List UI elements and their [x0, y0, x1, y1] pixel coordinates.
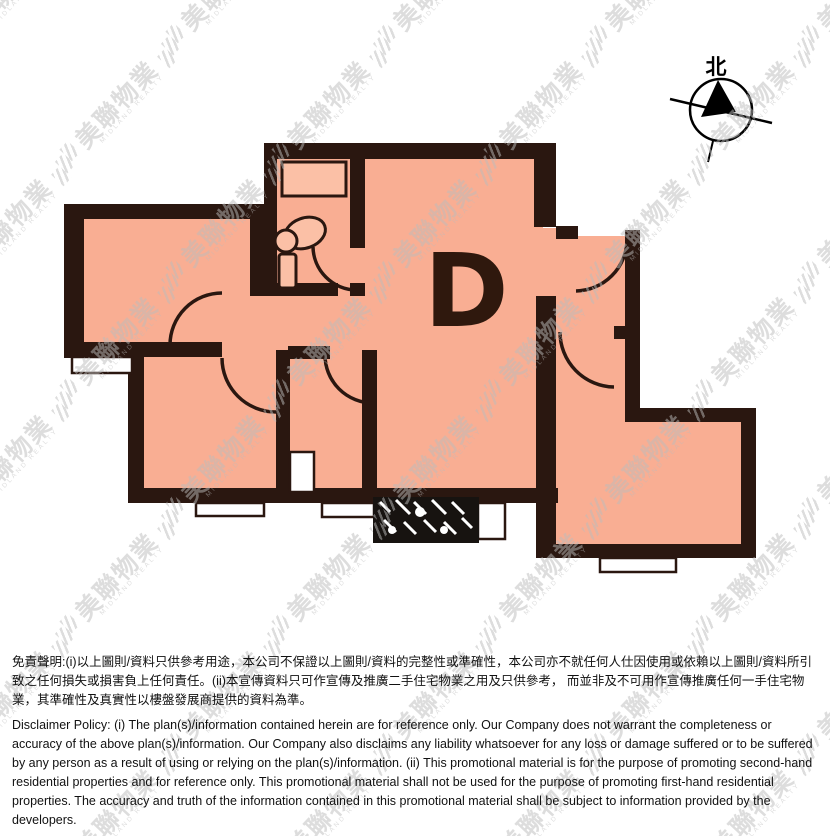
- toilet-tank: [275, 230, 297, 252]
- unit-label: D: [424, 232, 509, 351]
- window-sill-1: [196, 503, 264, 516]
- room-master-bedroom: [552, 416, 748, 552]
- compass-north-label: 北: [706, 56, 727, 79]
- floor-plan-page: D 北 美聯物業MIDLAND REALTY美聯物業MIDLAND REALTY…: [0, 0, 830, 836]
- room-corridor: [222, 292, 372, 354]
- window-ledge-left: [72, 357, 132, 373]
- closet-cabinet: [282, 162, 346, 196]
- window-sill-3: [478, 503, 505, 539]
- room-bedroom-bottomleft: [136, 352, 282, 494]
- room-entrance-hall: [552, 236, 630, 336]
- balcony-hatch-box: [374, 498, 478, 542]
- bathroom-sink: [279, 254, 296, 288]
- compass-tail: [708, 141, 713, 162]
- window-sill-4: [600, 558, 676, 572]
- disclaimer-english: Disclaimer Policy: (i) The plan(s)/infor…: [12, 716, 820, 830]
- window-sill-2: [322, 503, 374, 517]
- disclaimer: 免責聲明:(i)以上圖則/資料只供參考用途，本公司不保證以上圖則/資料的完整性或…: [12, 653, 820, 836]
- disclaimer-chinese: 免責聲明:(i)以上圖則/資料只供參考用途，本公司不保證以上圖則/資料的完整性或…: [12, 653, 820, 710]
- duct-box: [290, 452, 314, 492]
- compass: 北: [670, 56, 772, 162]
